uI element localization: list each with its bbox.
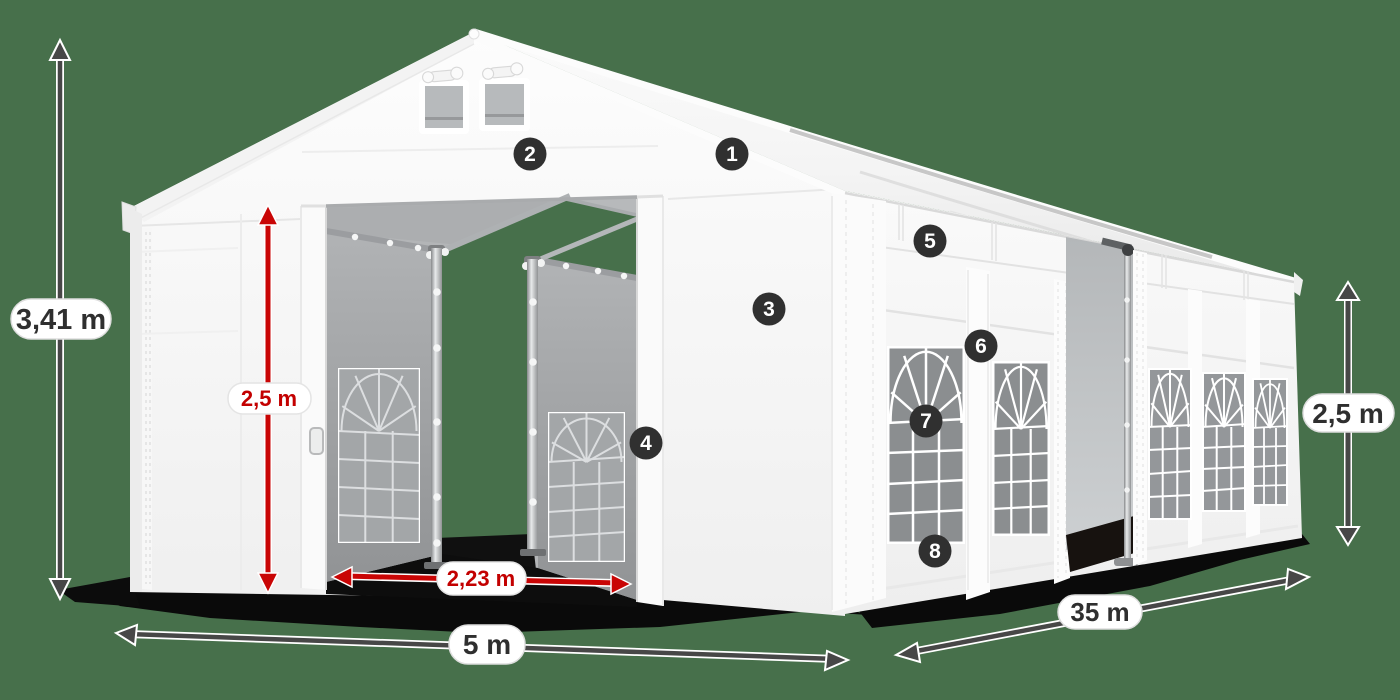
svg-text:1: 1 xyxy=(726,143,738,166)
svg-text:5: 5 xyxy=(924,230,936,253)
svg-text:2,5 m: 2,5 m xyxy=(1312,398,1384,429)
svg-text:2: 2 xyxy=(524,143,536,166)
svg-text:4: 4 xyxy=(640,432,652,455)
svg-text:6: 6 xyxy=(975,335,987,358)
svg-text:35 m: 35 m xyxy=(1070,597,1129,627)
svg-text:2,23 m: 2,23 m xyxy=(447,566,516,591)
svg-text:3,41 m: 3,41 m xyxy=(16,304,106,336)
svg-text:8: 8 xyxy=(929,540,941,563)
svg-text:3: 3 xyxy=(763,298,775,321)
svg-text:2,5 m: 2,5 m xyxy=(241,386,297,411)
svg-text:5 m: 5 m xyxy=(463,629,511,660)
svg-text:7: 7 xyxy=(920,410,932,433)
